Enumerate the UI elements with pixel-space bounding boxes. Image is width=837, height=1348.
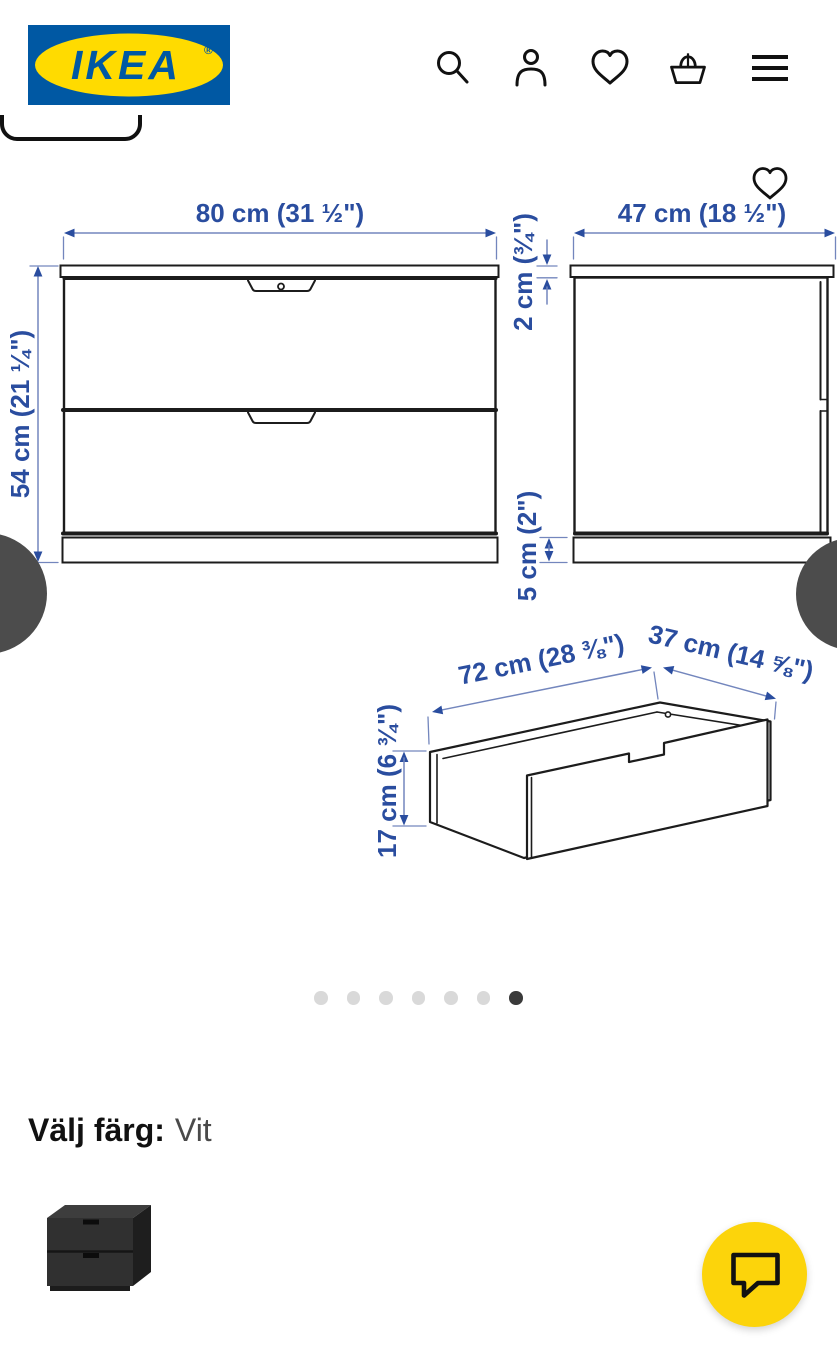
carousel-dot-7-active[interactable] <box>509 991 523 1005</box>
search-icon <box>431 45 471 91</box>
menu-button[interactable] <box>748 42 792 94</box>
heart-icon <box>589 45 631 91</box>
dim-drawer-depth-label: 37 cm (14 ⅝") <box>646 619 817 686</box>
color-picker-label: Välj färg: <box>28 1112 165 1148</box>
carousel-dots <box>0 991 837 1005</box>
product-image-carousel: 80 cm (31 ½") 54 cm (21 ¼") <box>0 115 837 1040</box>
search-button[interactable] <box>429 42 473 94</box>
favorites-button[interactable] <box>588 42 632 94</box>
speech-bubble-icon <box>702 1222 807 1327</box>
dim-front-height-label: 54 cm (21 ¼") <box>5 330 35 498</box>
favorite-heart-icon <box>750 165 790 203</box>
dim-front-width-label: 80 cm (31 ½") <box>196 198 364 228</box>
dim-plinth-height-label: 5 cm (2") <box>512 491 542 602</box>
anthracite-dresser-thumbnail <box>33 1198 155 1293</box>
dimension-diagram: 80 cm (31 ½") 54 cm (21 ¼") <box>0 115 837 1020</box>
color-picker-selected-value: Vit <box>175 1112 212 1148</box>
color-picker-heading: Välj färg:Vit <box>28 1112 212 1149</box>
carousel-dot-2[interactable] <box>347 991 361 1005</box>
header: IKEA ® <box>0 0 837 115</box>
basket-icon <box>666 44 710 92</box>
ikea-logo-icon: IKEA ® <box>28 25 230 105</box>
registered-mark: ® <box>204 43 213 57</box>
color-swatch-anthracite[interactable] <box>33 1198 155 1293</box>
carousel-dot-5[interactable] <box>444 991 458 1005</box>
hamburger-icon <box>750 48 790 88</box>
product-page: IKEA ® <box>0 0 837 1348</box>
profile-button[interactable] <box>509 42 553 94</box>
carousel-dot-6[interactable] <box>477 991 491 1005</box>
logo-text: IKEA <box>71 42 181 88</box>
profile-icon <box>511 45 551 91</box>
favorite-button[interactable] <box>748 163 792 207</box>
carousel-dot-4[interactable] <box>412 991 426 1005</box>
cart-button[interactable] <box>666 42 710 94</box>
carousel-dot-3[interactable] <box>379 991 393 1005</box>
dim-drawer-height-label: 17 cm (6 ¾") <box>372 704 402 858</box>
carousel-dot-1[interactable] <box>314 991 328 1005</box>
dim-top-thickness-label: 2 cm (¾") <box>508 213 538 331</box>
chat-button[interactable] <box>702 1222 807 1327</box>
ikea-logo[interactable]: IKEA ® <box>28 25 230 105</box>
dim-drawer-width-label: 72 cm (28 ⅜") <box>456 628 627 691</box>
